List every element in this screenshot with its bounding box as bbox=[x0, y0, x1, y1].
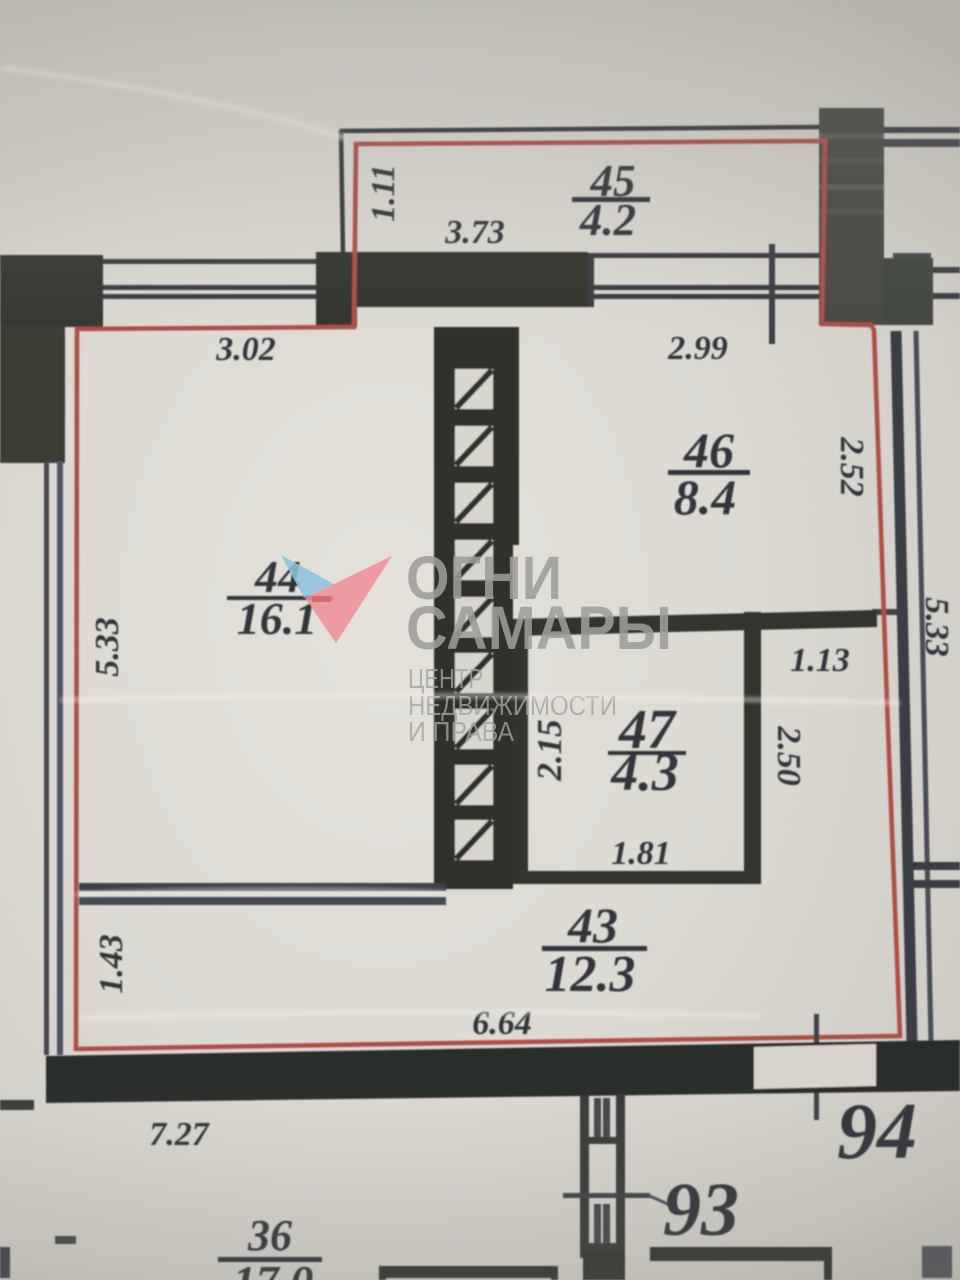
svg-text:1.81: 1.81 bbox=[611, 835, 671, 872]
svg-text:1.43: 1.43 bbox=[93, 934, 130, 994]
svg-text:1.13: 1.13 bbox=[790, 642, 850, 679]
svg-text:43: 43 bbox=[567, 897, 618, 953]
svg-text:4.3: 4.3 bbox=[610, 742, 679, 802]
svg-text:2.52: 2.52 bbox=[833, 436, 870, 497]
svg-text:И ПРАВА: И ПРАВА bbox=[408, 716, 514, 747]
svg-text:6.64: 6.64 bbox=[472, 1005, 532, 1042]
svg-text:5.33: 5.33 bbox=[918, 597, 955, 657]
svg-text:16.1: 16.1 bbox=[237, 593, 318, 644]
svg-text:12.3: 12.3 bbox=[545, 946, 636, 1003]
svg-text:5.33: 5.33 bbox=[89, 617, 126, 677]
svg-text:2.15: 2.15 bbox=[530, 719, 569, 781]
svg-text:8.4: 8.4 bbox=[674, 469, 737, 525]
svg-text:2.50: 2.50 bbox=[770, 725, 807, 786]
svg-text:САМАРЫ: САМАРЫ bbox=[406, 594, 672, 662]
